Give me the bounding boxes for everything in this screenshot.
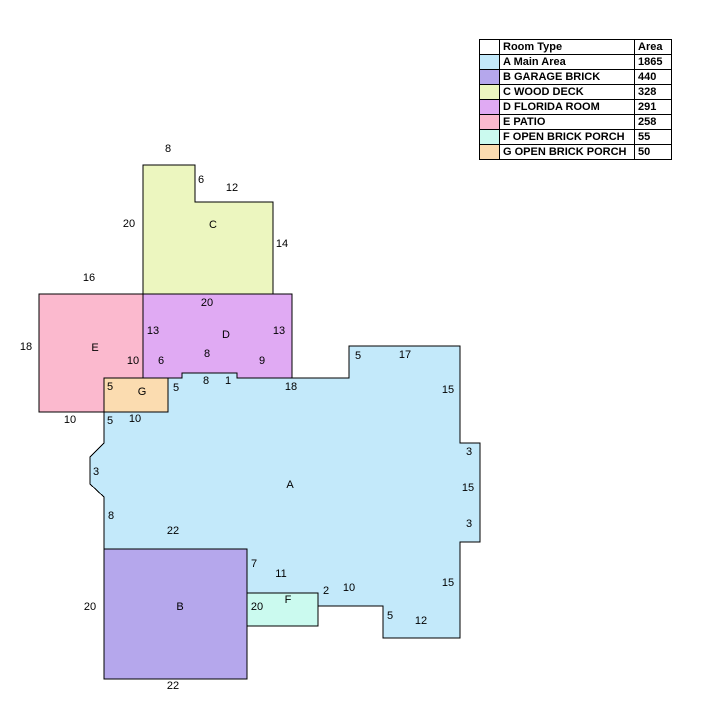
dimension-label: 1 [225, 375, 231, 387]
legend-room-type-cell: E PATIO [500, 115, 635, 130]
dimension-label: 6 [198, 174, 204, 186]
dimension-label: 5 [107, 415, 113, 427]
region-C[interactable] [143, 165, 273, 294]
legend-row-F: F OPEN BRICK PORCH55 [480, 130, 672, 145]
legend-row-G: G OPEN BRICK PORCH50 [480, 145, 672, 160]
region-letter-C: C [209, 219, 217, 231]
dimension-label: 22 [167, 680, 179, 692]
legend-color-swatch [480, 130, 500, 145]
dimension-label: 8 [165, 143, 171, 155]
dimension-label: 8 [108, 510, 114, 522]
legend-header-area: Area [635, 40, 672, 55]
sketch-canvas: AECDGBF861220141618102013131068955510811… [0, 0, 712, 717]
region-letter-B: B [176, 601, 183, 613]
legend-area-cell: 1865 [635, 55, 672, 70]
legend-area-cell: 55 [635, 130, 672, 145]
dimension-label: 5 [107, 381, 113, 393]
dimension-label: 11 [275, 568, 286, 580]
dimension-label: 17 [399, 349, 411, 361]
dimension-label: 8 [203, 375, 209, 387]
legend-room-type-cell: A Main Area [500, 55, 635, 70]
legend-row-D: D FLORIDA ROOM291 [480, 100, 672, 115]
dimension-label: 12 [415, 615, 427, 627]
legend-room-type-cell: F OPEN BRICK PORCH [500, 130, 635, 145]
legend-row-A: A Main Area1865 [480, 55, 672, 70]
dimension-label: 10 [343, 582, 355, 594]
legend-header-row: Room Type Area [480, 40, 672, 55]
legend-header-swatch-cell [480, 40, 500, 55]
legend-area-cell: 440 [635, 70, 672, 85]
dimension-label: 3 [93, 466, 99, 478]
dimension-label: 20 [84, 601, 96, 613]
region-letter-G: G [138, 386, 147, 398]
dimension-label: 20 [201, 297, 213, 309]
legend-color-swatch [480, 145, 500, 160]
legend-area-cell: 50 [635, 145, 672, 160]
dimension-label: 18 [285, 381, 297, 393]
dimension-label: 5 [355, 350, 361, 362]
region-D[interactable] [143, 294, 292, 378]
region-letter-F: F [285, 594, 292, 606]
legend-area-cell: 291 [635, 100, 672, 115]
dimension-label: 9 [259, 355, 265, 367]
dimension-label: 20 [251, 601, 263, 613]
region-letter-E: E [91, 342, 98, 354]
dimension-label: 6 [158, 355, 164, 367]
dimension-label: 8 [204, 348, 210, 360]
dimension-label: 15 [462, 482, 474, 494]
dimension-label: 3 [466, 518, 472, 530]
legend-row-B: B GARAGE BRICK440 [480, 70, 672, 85]
dimension-label: 7 [251, 558, 257, 570]
legend-room-type-cell: C WOOD DECK [500, 85, 635, 100]
dimension-label: 5 [387, 610, 393, 622]
dimension-label: 2 [323, 585, 329, 597]
legend-row-E: E PATIO258 [480, 115, 672, 130]
region-G[interactable] [104, 378, 168, 412]
dimension-label: 13 [273, 325, 285, 337]
dimension-label: 22 [167, 525, 179, 537]
legend-area-cell: 258 [635, 115, 672, 130]
dimension-label: 18 [20, 341, 32, 353]
dimension-label: 10 [129, 413, 141, 425]
legend-table: Room Type Area A Main Area1865B GARAGE B… [479, 39, 672, 160]
dimension-label: 20 [123, 218, 135, 230]
legend-color-swatch [480, 85, 500, 100]
legend-room-type-cell: B GARAGE BRICK [500, 70, 635, 85]
dimension-label: 12 [226, 182, 238, 194]
legend-color-swatch [480, 115, 500, 130]
dimension-label: 3 [466, 446, 472, 458]
legend-room-type-cell: D FLORIDA ROOM [500, 100, 635, 115]
legend-color-swatch [480, 55, 500, 70]
legend-color-swatch [480, 100, 500, 115]
dimension-label: 14 [276, 238, 288, 250]
dimension-label: 15 [442, 577, 454, 589]
region-letter-A: A [286, 479, 294, 491]
region-letter-D: D [222, 329, 230, 341]
dimension-label: 10 [127, 355, 139, 367]
dimension-label: 16 [83, 272, 95, 284]
legend-room-type-cell: G OPEN BRICK PORCH [500, 145, 635, 160]
legend-area-cell: 328 [635, 85, 672, 100]
dimension-label: 5 [173, 382, 179, 394]
dimension-label: 15 [442, 384, 454, 396]
legend-color-swatch [480, 70, 500, 85]
dimension-label: 13 [147, 325, 159, 337]
dimension-label: 10 [64, 414, 76, 426]
region-B[interactable] [104, 549, 247, 679]
legend-header-room-type: Room Type [500, 40, 635, 55]
legend-row-C: C WOOD DECK328 [480, 85, 672, 100]
legend-table-body: A Main Area1865B GARAGE BRICK440C WOOD D… [480, 55, 672, 160]
